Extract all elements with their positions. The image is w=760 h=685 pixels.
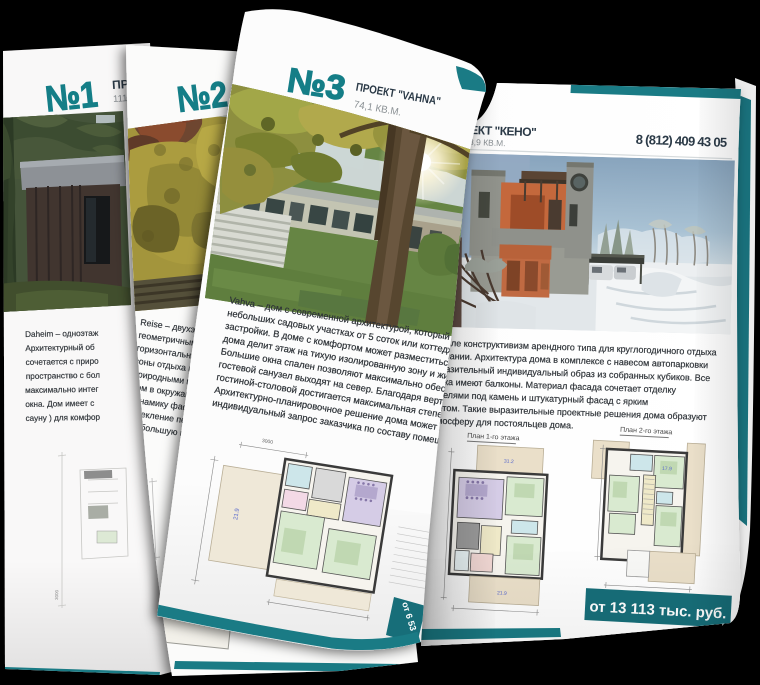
svg-text:сочетается с приро: сочетается с приро — [25, 357, 99, 367]
svg-text:№1: №1 — [43, 73, 99, 119]
svg-text:Daheim – одноэтаж: Daheim – одноэтаж — [25, 329, 99, 339]
svg-text:окна. Дом имеет с: окна. Дом имеет с — [25, 399, 94, 409]
svg-text:Архитектурный об: Архитектурный об — [25, 343, 95, 353]
svg-text:пространство с бол: пространство с бол — [26, 371, 101, 381]
svg-text:3000: 3000 — [54, 589, 59, 600]
svg-text:№2: №2 — [175, 73, 230, 120]
svg-text:сауну ) для комфор: сауну ) для комфор — [25, 413, 100, 423]
svg-text:17.9: 17.9 — [662, 466, 672, 473]
svg-text:максимально интег: максимально интег — [25, 385, 99, 395]
svg-text:31.2: 31.2 — [504, 459, 514, 466]
